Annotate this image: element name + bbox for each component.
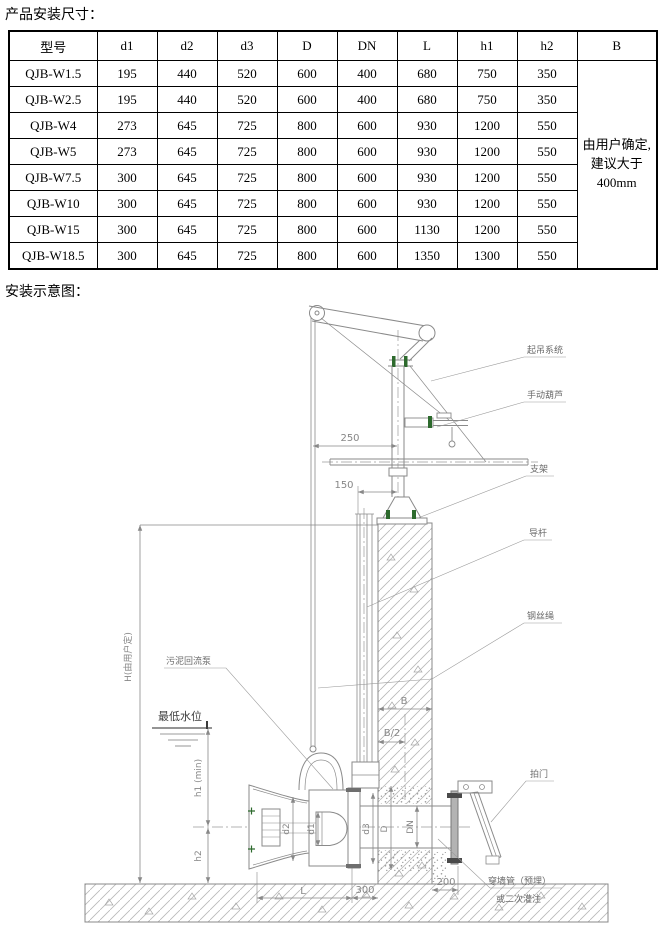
impeller-dome	[316, 812, 347, 846]
leader-lines	[164, 357, 566, 888]
dim-text-D: D	[380, 825, 390, 832]
mast-support-base	[377, 497, 427, 524]
dim-text-B: B	[401, 696, 408, 707]
hoist-hook	[449, 441, 455, 447]
dim-text-h1: h1 (min)	[194, 759, 204, 797]
submersible-pump	[248, 746, 361, 869]
label-wire-rope: 钢丝绳	[527, 610, 554, 622]
flange-bolt	[447, 793, 462, 798]
anchor-bolt	[386, 510, 390, 519]
dim-text-d3: d3	[362, 823, 372, 834]
pipe-end-flange	[451, 791, 458, 864]
dim-text-B2: B/2	[384, 728, 401, 739]
label-flap-valve: 拍门	[530, 768, 548, 780]
anchor-bolt	[412, 510, 416, 519]
jib-boom	[309, 306, 426, 326]
label-guide-rod: 导杆	[529, 527, 547, 539]
flange-bolt	[392, 356, 396, 367]
rope-hook	[310, 746, 316, 752]
label-wall-pipe-2: 或二次灌注	[496, 893, 541, 905]
label-sludge-pump: 污泥回流泵	[166, 655, 211, 667]
lifting-bail	[299, 753, 343, 790]
dim-text-DN: DN	[406, 820, 416, 834]
hoist-bolt	[428, 416, 432, 428]
label-wall-pipe-1: 穿墙管（预埋）	[488, 875, 551, 887]
dim-text-d2: d2	[282, 823, 292, 834]
flange-bolt	[447, 858, 462, 863]
label-manual-hoist: 手动葫芦	[527, 389, 563, 401]
dim-text-300: 300	[355, 885, 374, 896]
dim-text-250: 250	[340, 433, 359, 444]
water-level-symbol	[152, 721, 212, 746]
grout-band-bottom	[379, 850, 432, 872]
component-labels: 起吊系统 手动葫芦 支架 导杆 钢丝绳 拍门 穿墙管（预埋） 或二次灌注 污泥回…	[158, 344, 563, 905]
centerlines	[193, 330, 538, 827]
label-bracket: 支架	[530, 463, 548, 475]
flange-bolt	[404, 356, 408, 367]
dim-text-h2: h2	[194, 850, 204, 861]
label-lowest-water-level: 最低水位	[158, 709, 202, 723]
dim-text-150: 150	[334, 480, 353, 491]
installation-diagram: 起吊系统 手动葫芦 支架 导杆 钢丝绳 拍门 穿墙管（预埋） 或二次灌注 污泥回…	[0, 0, 664, 933]
dim-text-L: L	[300, 886, 306, 897]
dim-text-d1: d1	[307, 823, 317, 834]
dim-text-H: H(由用户定)	[122, 632, 134, 682]
guide-rail	[352, 514, 379, 788]
manual-hoist-assembly	[405, 413, 468, 447]
label-lifting-system: 起吊系统	[527, 344, 563, 356]
pump-flange	[348, 788, 360, 868]
boom-elbow	[419, 325, 435, 341]
document-page: 产品安装尺寸： 型号 d1 d2 d3 D DN L h1 h2 B QJB-W…	[0, 0, 664, 933]
dim-text-200: 200	[436, 877, 455, 888]
bell-mouth	[249, 785, 309, 869]
